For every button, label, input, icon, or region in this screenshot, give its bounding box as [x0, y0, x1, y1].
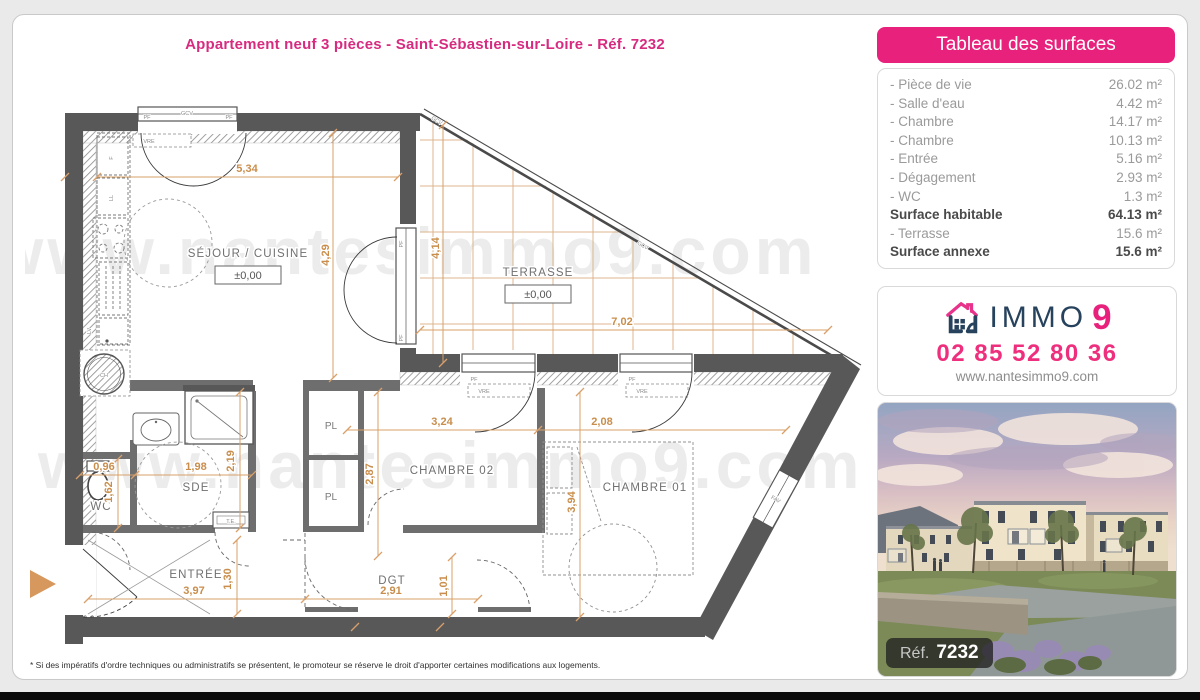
dim-label: 2,91 — [380, 585, 401, 597]
brand-immo: IMMO — [989, 301, 1087, 335]
dim-label: 2,19 — [225, 450, 237, 471]
agency-phone[interactable]: 02 85 52 80 36 — [936, 340, 1117, 368]
row-label: - Terrasse — [890, 225, 950, 244]
blind-label: VRE — [478, 389, 490, 395]
dim-label: 1,30 — [222, 568, 234, 589]
room-label-ch02: CHAMBRE 02 — [410, 465, 495, 477]
table-row: - Entrée5.16 m² — [890, 150, 1162, 169]
room-label-ch01: CHAMBRE 01 — [603, 482, 688, 494]
window-label: PF — [470, 377, 478, 383]
level-terrasse: ±0,00 — [524, 289, 551, 301]
appliance-label: LL — [109, 195, 115, 201]
row-label: - Chambre — [890, 113, 954, 132]
room-label-sejour: SÉJOUR / CUISINE — [188, 247, 308, 260]
dim-label: 7,02 — [611, 316, 632, 328]
table-row-total: Surface annexe15.6 m² — [890, 243, 1162, 262]
dim-label: 1,62 — [103, 481, 115, 502]
dim-label: 3,24 — [431, 416, 453, 428]
row-value: 15.6 m² — [1115, 243, 1162, 262]
appliance-label: F — [109, 156, 115, 160]
door-swings-dashed — [92, 489, 530, 612]
room-label-entree: ENTRÉE — [169, 568, 222, 581]
row-value: 4.42 m² — [1116, 95, 1162, 114]
ref-number: 7232 — [936, 642, 978, 664]
house-icon — [942, 299, 984, 337]
row-label: - Dégagement — [890, 169, 976, 188]
appliance-label: LV — [87, 328, 93, 335]
blind-label: VRE — [636, 389, 648, 395]
table-row: - Dégagement2.93 m² — [890, 169, 1162, 188]
disclaimer-text: * Si des impératifs d'ordre techniques o… — [30, 660, 600, 670]
surfaces-table: - Pièce de vie26.02 m² - Salle d'eau4.42… — [877, 68, 1175, 269]
row-value: 5.16 m² — [1116, 150, 1162, 169]
row-label: - Entrée — [890, 150, 938, 169]
page-title: Appartement neuf 3 pièces - Saint-Sébast… — [30, 36, 820, 53]
dim-label: 3,97 — [183, 585, 204, 597]
row-value: 14.17 m² — [1109, 113, 1162, 132]
table-row: - Pièce de vie26.02 m² — [890, 76, 1162, 95]
window-label: PF — [225, 115, 233, 121]
dim-label: 3,94 — [566, 490, 578, 512]
window-label: PF — [628, 377, 636, 383]
bottom-bar — [0, 692, 1200, 700]
dim-label: 5,34 — [236, 163, 258, 175]
photo-ref-badge: Réf. 7232 — [886, 638, 993, 668]
row-value: 10.13 m² — [1109, 132, 1162, 151]
table-row: - Chambre14.17 m² — [890, 113, 1162, 132]
window-label: PF — [399, 240, 405, 248]
surfaces-header-label: Tableau des surfaces — [936, 34, 1116, 56]
room-label-pl: PL — [325, 492, 338, 503]
room-labels: SÉJOUR / CUISINE ±0,00 TERRASSE ±0,00 CH… — [90, 116, 687, 587]
dim-label: 2,08 — [591, 416, 612, 428]
agency-website-link[interactable]: www.nantesimmo9.com — [956, 369, 1099, 384]
room-label-terrasse: TERRASSE — [503, 267, 574, 279]
row-value: 2.93 m² — [1116, 169, 1162, 188]
table-row: - WC1.3 m² — [890, 188, 1162, 207]
window-label: GCV — [181, 111, 193, 117]
room-label-sde: SDE — [183, 482, 210, 494]
dim-label: 1,98 — [185, 461, 206, 473]
row-value: 15.6 m² — [1116, 225, 1162, 244]
floor-plan: www.nantesimmo9.com www.nantesimmo9.com — [25, 85, 870, 665]
dim-label: 0,96 — [93, 461, 114, 473]
row-label: - Salle d'eau — [890, 95, 965, 114]
row-value: 26.02 m² — [1109, 76, 1162, 95]
dim-label: 1,01 — [438, 575, 450, 596]
row-label: - WC — [890, 188, 921, 207]
window-label: PF — [399, 334, 405, 342]
row-value: 64.13 m² — [1108, 206, 1162, 225]
table-row: - Terrasse15.6 m² — [890, 225, 1162, 244]
ref-label: Réf. — [900, 645, 929, 663]
row-label: Surface annexe — [890, 243, 990, 262]
surfaces-header: Tableau des surfaces — [877, 27, 1175, 63]
dim-label: 4,29 — [320, 244, 332, 265]
agency-logo: IMMO9 — [942, 298, 1111, 338]
window-label: PF — [143, 115, 151, 121]
dim-label: 2,87 — [364, 463, 376, 484]
entry-arrow — [30, 570, 56, 598]
fixture-label: CH — [100, 373, 108, 379]
dim-label: 4,14 — [430, 236, 442, 258]
blind-label: VRE — [143, 139, 155, 145]
building-render — [878, 403, 1176, 676]
level-sejour: ±0,00 — [234, 270, 261, 282]
fixture-label: T.E. — [226, 519, 236, 525]
table-row-total: Surface habitable64.13 m² — [890, 206, 1162, 225]
table-row: - Chambre10.13 m² — [890, 132, 1162, 151]
brand-nine: 9 — [1092, 298, 1111, 338]
row-label: - Chambre — [890, 132, 954, 151]
room-label-pl: PL — [325, 421, 338, 432]
table-row: - Salle d'eau4.42 m² — [890, 95, 1162, 114]
row-label: - Pièce de vie — [890, 76, 972, 95]
agency-card: IMMO9 02 85 52 80 36 www.nantesimmo9.com — [877, 286, 1177, 396]
row-label: Surface habitable — [890, 206, 1003, 225]
row-value: 1.3 m² — [1124, 188, 1162, 207]
building-photo: Réf. 7232 — [877, 402, 1177, 677]
